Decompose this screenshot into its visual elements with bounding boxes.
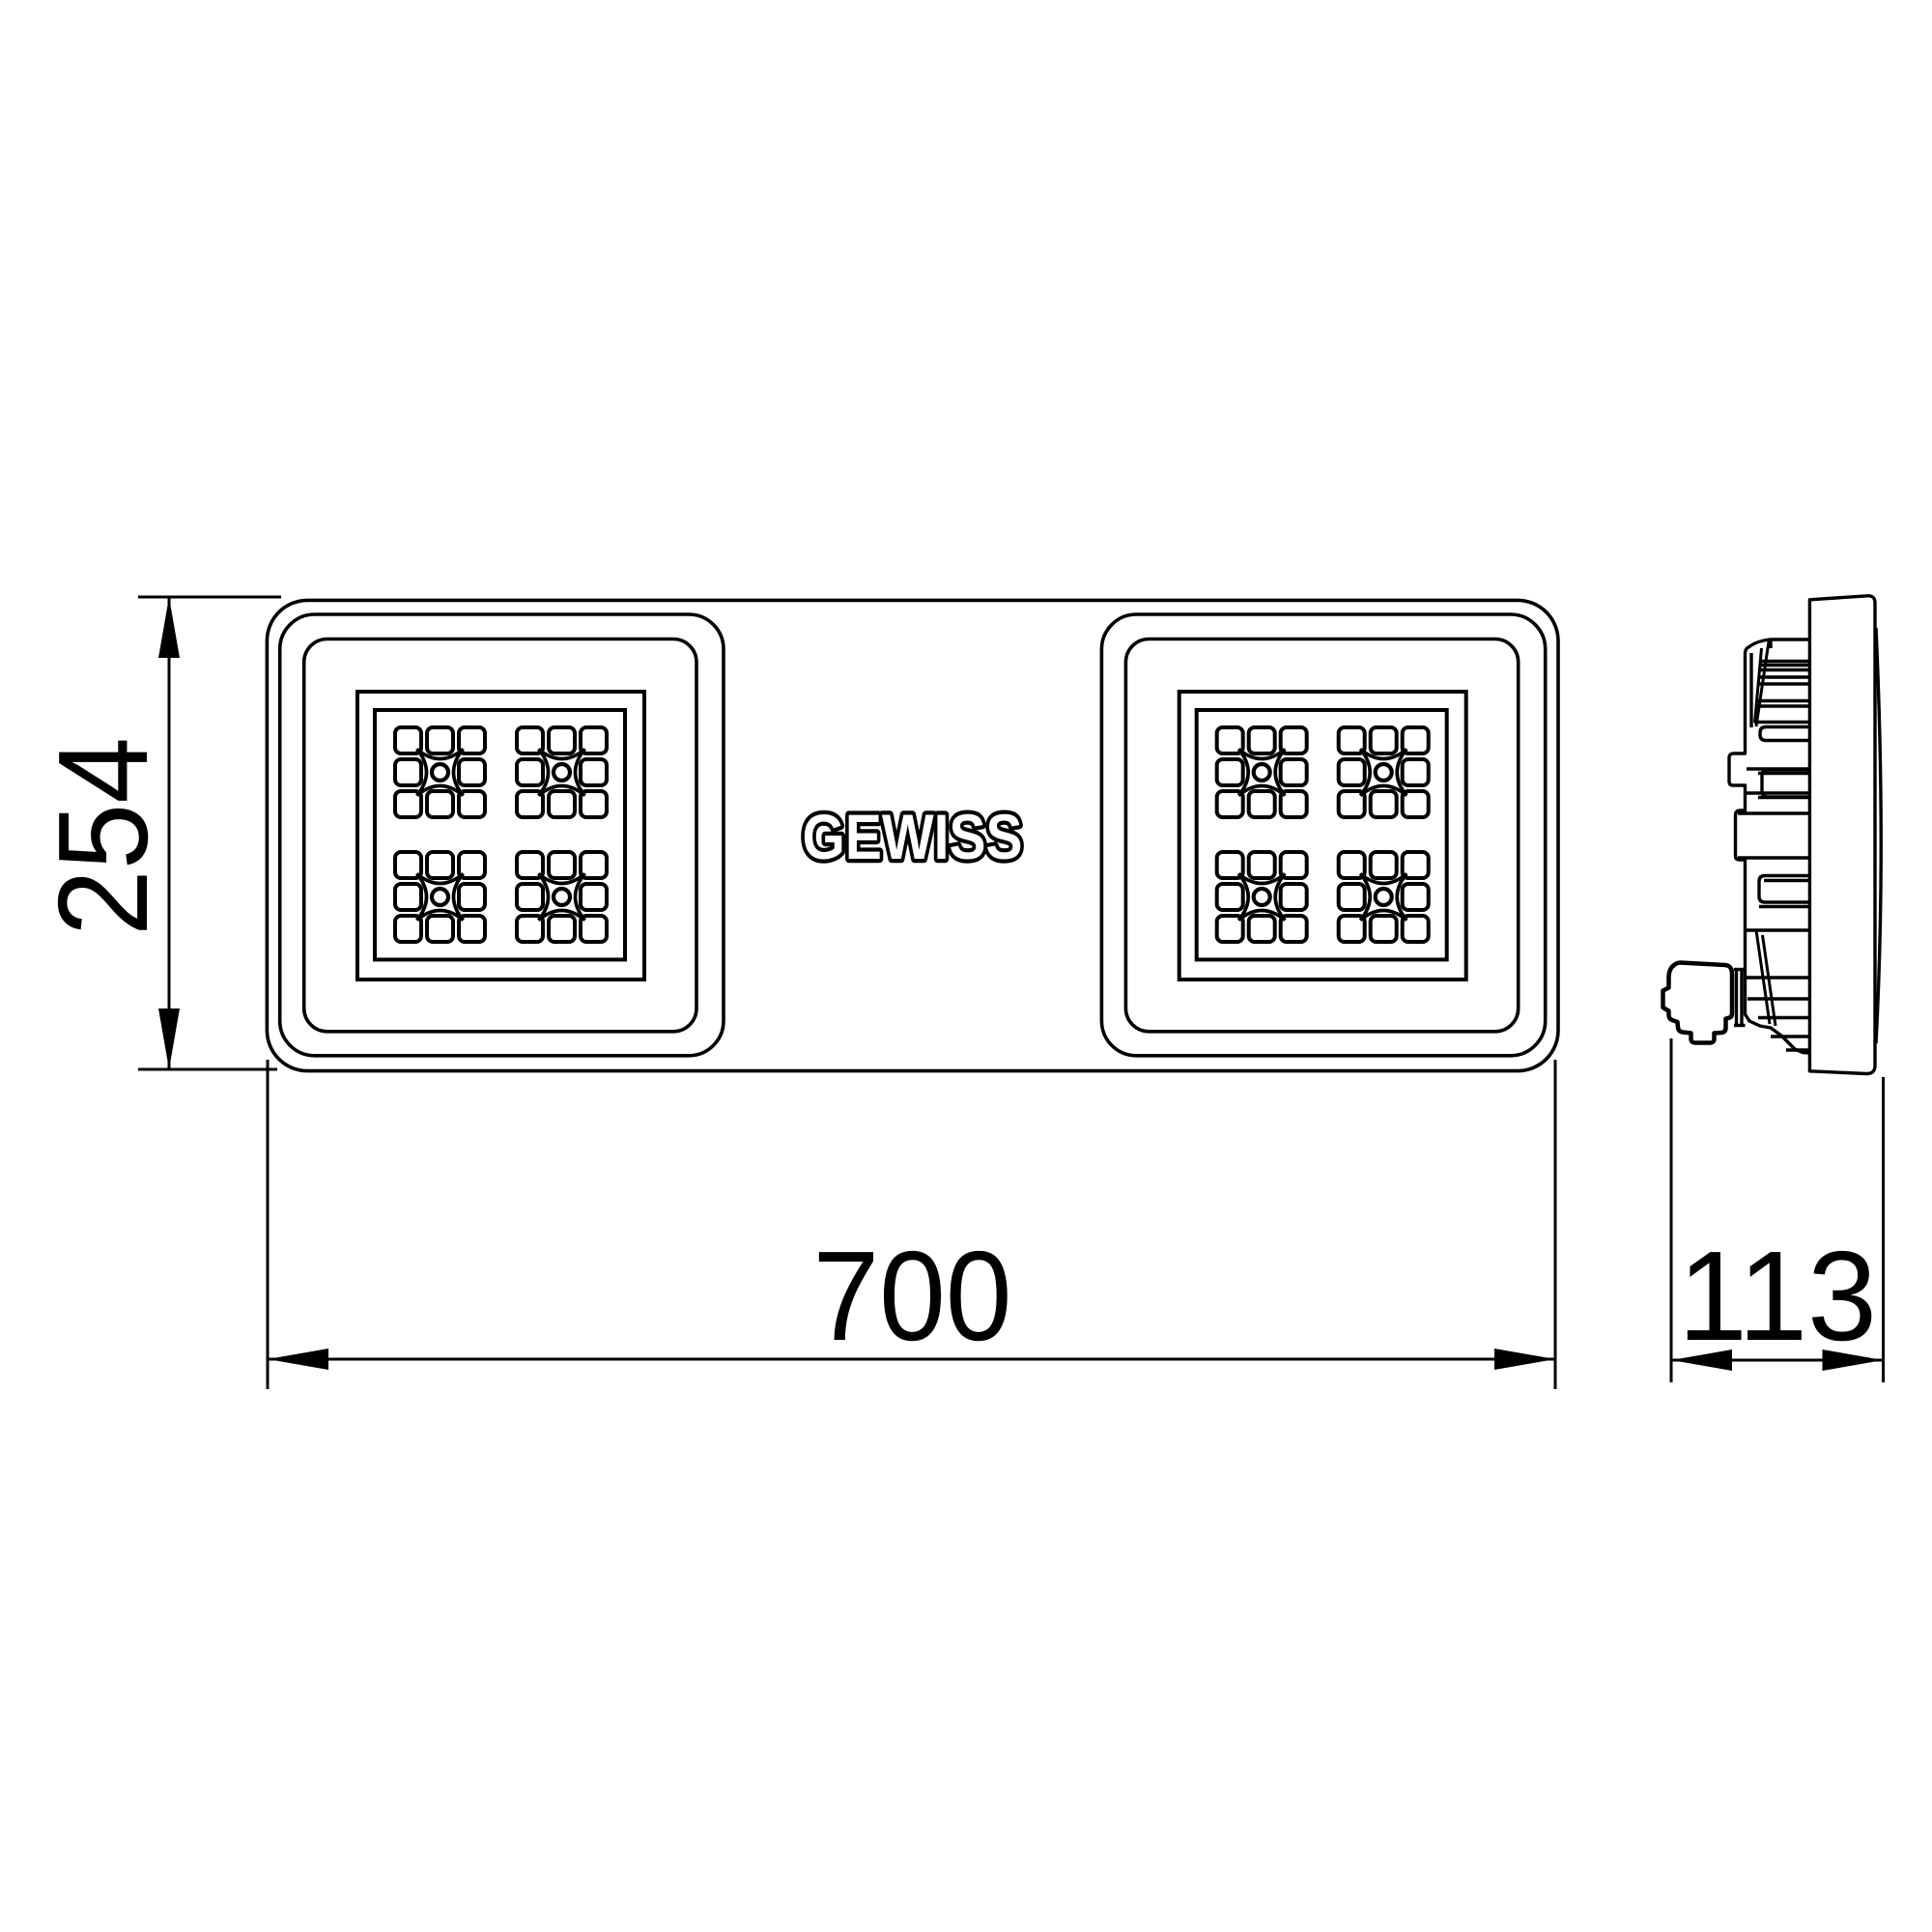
svg-text:113: 113	[1678, 1225, 1877, 1367]
svg-text:700: 700	[813, 1225, 1012, 1367]
svg-text:254: 254	[32, 737, 174, 936]
svg-text:GEWISS: GEWISS	[803, 801, 1023, 872]
